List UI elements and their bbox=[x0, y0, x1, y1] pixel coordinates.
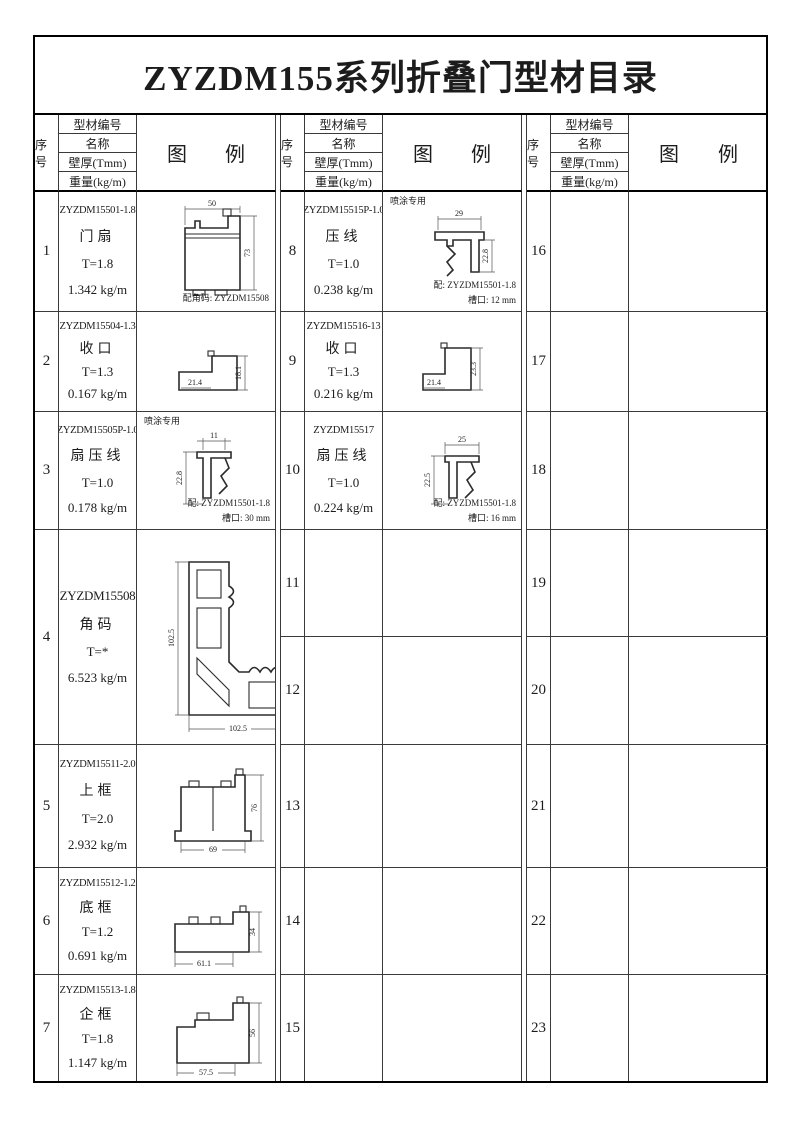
row-22-seq: 22 bbox=[527, 868, 551, 975]
col-header-seq-2: 序号 bbox=[281, 115, 305, 192]
dim-label: 23.3 bbox=[469, 362, 478, 376]
row-16-legend-empty bbox=[629, 192, 768, 312]
col-header-weight-3: 重量(kg/m) bbox=[551, 172, 629, 192]
catalog-table: ZYZDM155系列折叠门型材目录 序号 型材编号 名称 壁厚(Tmm) 重量(… bbox=[33, 35, 768, 1083]
row-14-info-empty bbox=[305, 868, 383, 975]
row-6-legend: 61.1 34 bbox=[137, 868, 276, 975]
profile-figure-7: 57.5 56 bbox=[137, 975, 276, 1081]
catalog-grid: 序号 型材编号 名称 壁厚(Tmm) 重量(kg/m) 图 例 序号 型材编号 … bbox=[35, 115, 766, 1081]
catalog-sheet: ZYZDM155系列折叠门型材目录 序号 型材编号 名称 壁厚(Tmm) 重量(… bbox=[0, 0, 800, 1131]
legend-char-tu: 图 bbox=[167, 138, 187, 167]
figure-note-slot: 槽口: 30 mm bbox=[188, 511, 271, 525]
row-8-weight: 0.238 kg/m bbox=[314, 282, 373, 298]
row-5-name: 上框 bbox=[80, 780, 116, 800]
dim-label: 50 bbox=[208, 199, 216, 208]
col-header-code-1: 型材编号 bbox=[59, 115, 137, 134]
row-18-legend-empty bbox=[629, 412, 768, 530]
row-15-seq: 15 bbox=[281, 975, 305, 1081]
dim-label: 21.4 bbox=[427, 378, 441, 387]
legend-char-li: 例 bbox=[225, 138, 245, 167]
figure-notes: 配: ZYZDM15501-1.8 槽口: 16 mm bbox=[434, 496, 517, 525]
row-15-info-empty bbox=[305, 975, 383, 1081]
row-14-legend-empty bbox=[383, 868, 522, 975]
col-header-name-3: 名称 bbox=[551, 134, 629, 153]
row-13-info-empty bbox=[305, 745, 383, 868]
col-header-thick-3: 壁厚(Tmm) bbox=[551, 153, 629, 172]
dim-label: 22.8 bbox=[481, 249, 490, 263]
row-3-thickness: T=1.0 bbox=[82, 475, 114, 491]
col-header-thick-1: 壁厚(Tmm) bbox=[59, 153, 137, 172]
legend-char-li: 例 bbox=[471, 138, 491, 167]
row-4-seq: 4 bbox=[35, 530, 59, 745]
row-1-info: ZYZDM15501-1.8 门扇 T=1.8 1.342 kg/m bbox=[59, 192, 137, 312]
dim-label: 73 bbox=[243, 249, 252, 257]
row-16-info-empty bbox=[551, 192, 629, 312]
row-4-code: ZYZDM15508 bbox=[60, 588, 136, 604]
row-8-seq: 8 bbox=[281, 192, 305, 312]
row-23-seq: 23 bbox=[527, 975, 551, 1081]
row-20-info-empty bbox=[551, 637, 629, 745]
row-17-legend-empty bbox=[629, 312, 768, 412]
figure-note: 配角码: ZYZDM15508 bbox=[183, 291, 269, 304]
row-4-name: 角码 bbox=[80, 614, 116, 634]
row-9-weight: 0.216 kg/m bbox=[314, 386, 373, 402]
row-6-info: ZYZDM15512-1.2 底框 T=1.2 0.691 kg/m bbox=[59, 868, 137, 975]
row-19-info-empty bbox=[551, 530, 629, 637]
col-header-name-2: 名称 bbox=[305, 134, 383, 153]
row-3-legend: 11 22.8 喷涂专用 配: ZYZDM15501-1.8 槽口: 30 mm bbox=[137, 412, 276, 530]
row-16-seq: 16 bbox=[527, 192, 551, 312]
dim-label: 29 bbox=[455, 209, 463, 218]
row-10-thickness: T=1.0 bbox=[328, 475, 360, 491]
profile-outline bbox=[185, 216, 240, 290]
row-8-name: 压线 bbox=[326, 226, 362, 246]
figure-note-slot: 槽口: 12 mm bbox=[434, 293, 517, 307]
profile-figure-4: 102.5 102.5 41 bbox=[137, 530, 276, 745]
row-8-thickness: T=1.0 bbox=[328, 256, 360, 272]
col-header-legend-1: 图 例 bbox=[137, 115, 276, 192]
row-10-info: ZYZDM15517 扇压线 T=1.0 0.224 kg/m bbox=[305, 412, 383, 530]
dim-label: 102.5 bbox=[229, 724, 247, 733]
col-header-seq-1: 序号 bbox=[35, 115, 59, 192]
row-17-seq: 17 bbox=[527, 312, 551, 412]
col-header-name-1: 名称 bbox=[59, 134, 137, 153]
profile-figure-5: 69 76 bbox=[137, 745, 276, 868]
row-3-seq: 3 bbox=[35, 412, 59, 530]
dim-label: 11 bbox=[210, 431, 218, 440]
row-5-seq: 5 bbox=[35, 745, 59, 868]
dim-label: 21.4 bbox=[188, 378, 202, 387]
row-4-thickness: T=* bbox=[87, 644, 109, 660]
row-7-seq: 7 bbox=[35, 975, 59, 1081]
row-7-name: 企框 bbox=[80, 1004, 116, 1024]
row-10-code: ZYZDM15517 bbox=[313, 425, 374, 436]
row-23-info-empty bbox=[551, 975, 629, 1081]
row-8-code: ZYZDM15515P-1.0 bbox=[305, 205, 383, 216]
row-14-seq: 14 bbox=[281, 868, 305, 975]
row-17-info-empty bbox=[551, 312, 629, 412]
row-3-name: 扇压线 bbox=[71, 445, 125, 465]
row-1-thickness: T=1.8 bbox=[82, 256, 114, 272]
row-2-code: ZYZDM15504-1.3 bbox=[60, 321, 136, 332]
row-7-info: ZYZDM15513-1.8 企框 T=1.8 1.147 kg/m bbox=[59, 975, 137, 1081]
row-8-info: ZYZDM15515P-1.0 压线 T=1.0 0.238 kg/m bbox=[305, 192, 383, 312]
profile-outline bbox=[435, 232, 484, 272]
col-header-weight-2: 重量(kg/m) bbox=[305, 172, 383, 192]
row-2-name: 收口 bbox=[80, 338, 116, 358]
row-19-legend-empty bbox=[629, 530, 768, 637]
legend-char-tu: 图 bbox=[659, 138, 679, 167]
row-7-thickness: T=1.8 bbox=[82, 1031, 114, 1047]
row-13-seq: 13 bbox=[281, 745, 305, 868]
row-21-info-empty bbox=[551, 745, 629, 868]
row-12-seq: 12 bbox=[281, 637, 305, 745]
figure-special-note: 喷涂专用 bbox=[390, 194, 426, 207]
col-header-legend-2: 图 例 bbox=[383, 115, 522, 192]
row-2-info: ZYZDM15504-1.3 收口 T=1.3 0.167 kg/m bbox=[59, 312, 137, 412]
profile-outline bbox=[175, 912, 249, 952]
row-12-legend-empty bbox=[383, 637, 522, 745]
figure-note-match: 配: ZYZDM15501-1.8 bbox=[434, 496, 517, 510]
row-19-seq: 19 bbox=[527, 530, 551, 637]
profile-figure-6: 61.1 34 bbox=[137, 868, 276, 975]
dim-label: 18.1 bbox=[234, 366, 243, 380]
dim-label: 25 bbox=[458, 435, 466, 444]
dim-label: 22.5 bbox=[423, 473, 432, 487]
row-9-info: ZYZDM15516-13 收口 T=1.3 0.216 kg/m bbox=[305, 312, 383, 412]
row-6-thickness: T=1.2 bbox=[82, 924, 114, 940]
row-1-code: ZYZDM15501-1.8 bbox=[60, 205, 136, 216]
row-18-info-empty bbox=[551, 412, 629, 530]
row-6-name: 底框 bbox=[80, 897, 116, 917]
row-11-seq: 11 bbox=[281, 530, 305, 637]
row-18-seq: 18 bbox=[527, 412, 551, 530]
col-header-code-3: 型材编号 bbox=[551, 115, 629, 134]
row-9-seq: 9 bbox=[281, 312, 305, 412]
dim-label: 102.5 bbox=[167, 629, 176, 647]
profile-outline bbox=[445, 456, 479, 498]
row-6-seq: 6 bbox=[35, 868, 59, 975]
profile-outline bbox=[177, 1003, 249, 1063]
row-10-weight: 0.224 kg/m bbox=[314, 500, 373, 516]
row-21-legend-empty bbox=[629, 745, 768, 868]
dim-label: 76 bbox=[250, 804, 259, 812]
col-header-seq-3: 序号 bbox=[527, 115, 551, 192]
row-11-info-empty bbox=[305, 530, 383, 637]
dim-label: 57.5 bbox=[199, 1068, 213, 1077]
row-9-code: ZYZDM15516-13 bbox=[307, 321, 381, 332]
row-13-legend-empty bbox=[383, 745, 522, 868]
figure-notes: 配: ZYZDM15501-1.8 槽口: 30 mm bbox=[188, 496, 271, 525]
row-23-legend-empty bbox=[629, 975, 768, 1081]
dim-label: 69 bbox=[209, 845, 217, 854]
row-5-thickness: T=2.0 bbox=[82, 811, 114, 827]
row-4-legend: 102.5 102.5 41 bbox=[137, 530, 276, 745]
row-2-legend: 21.4 18.1 bbox=[137, 312, 276, 412]
row-2-seq: 2 bbox=[35, 312, 59, 412]
row-12-info-empty bbox=[305, 637, 383, 745]
row-7-code: ZYZDM15513-1.8 bbox=[60, 985, 136, 996]
row-1-name: 门扇 bbox=[80, 226, 116, 246]
row-20-seq: 20 bbox=[527, 637, 551, 745]
row-3-info: ZYZDM15505P-1.0 扇压线 T=1.0 0.178 kg/m bbox=[59, 412, 137, 530]
profile-figure-2: 21.4 18.1 bbox=[137, 312, 276, 412]
row-5-legend: 69 76 bbox=[137, 745, 276, 868]
row-15-legend-empty bbox=[383, 975, 522, 1081]
legend-char-tu: 图 bbox=[413, 138, 433, 167]
figure-note-match: 配: ZYZDM15501-1.8 bbox=[188, 496, 271, 510]
row-9-name: 收口 bbox=[326, 338, 362, 358]
row-6-code: ZYZDM15512-1.2 bbox=[60, 878, 136, 889]
col-header-thick-2: 壁厚(Tmm) bbox=[305, 153, 383, 172]
row-1-legend: 50 73 配角码: ZYZDM15508 bbox=[137, 192, 276, 312]
row-1-seq: 1 bbox=[35, 192, 59, 312]
row-6-weight: 0.691 kg/m bbox=[68, 948, 127, 964]
row-7-legend: 57.5 56 bbox=[137, 975, 276, 1081]
row-22-legend-empty bbox=[629, 868, 768, 975]
row-1-weight: 1.342 kg/m bbox=[68, 282, 127, 298]
row-2-weight: 0.167 kg/m bbox=[68, 386, 127, 402]
dim-label: 22.8 bbox=[175, 471, 184, 485]
page-title: ZYZDM155系列折叠门型材目录 bbox=[143, 50, 658, 101]
dim-label: 56 bbox=[248, 1029, 257, 1037]
row-5-info: ZYZDM15511-2.0 上框 T=2.0 2.932 kg/m bbox=[59, 745, 137, 868]
row-5-weight: 2.932 kg/m bbox=[68, 837, 127, 853]
row-21-seq: 21 bbox=[527, 745, 551, 868]
figure-notes: 配: ZYZDM15501-1.8 槽口: 12 mm bbox=[434, 278, 517, 307]
figure-note-match: 配: ZYZDM15501-1.8 bbox=[434, 278, 517, 292]
row-8-legend: 29 22.8 喷涂专用 配: ZYZDM15501-1.8 槽口: 12 mm bbox=[383, 192, 522, 312]
row-5-code: ZYZDM15511-2.0 bbox=[60, 759, 136, 770]
row-20-legend-empty bbox=[629, 637, 768, 745]
profile-outline bbox=[189, 562, 276, 715]
dim-label: 61.1 bbox=[197, 959, 211, 968]
col-header-weight-1: 重量(kg/m) bbox=[59, 172, 137, 192]
row-3-code: ZYZDM15505P-1.0 bbox=[59, 425, 137, 436]
legend-char-li: 例 bbox=[718, 138, 738, 167]
figure-special-note: 喷涂专用 bbox=[144, 414, 180, 427]
row-10-seq: 10 bbox=[281, 412, 305, 530]
row-7-weight: 1.147 kg/m bbox=[68, 1055, 127, 1071]
col-header-code-2: 型材编号 bbox=[305, 115, 383, 134]
row-9-thickness: T=1.3 bbox=[328, 364, 360, 380]
row-4-info: ZYZDM15508 角码 T=* 6.523 kg/m bbox=[59, 530, 137, 745]
figure-note-slot: 槽口: 16 mm bbox=[434, 511, 517, 525]
row-9-legend: 21.4 23.3 bbox=[383, 312, 522, 412]
profile-figure-9: 21.4 23.3 bbox=[383, 312, 522, 412]
col-header-legend-3: 图 例 bbox=[629, 115, 768, 192]
dim-label: 34 bbox=[248, 928, 257, 936]
row-2-thickness: T=1.3 bbox=[82, 364, 114, 380]
row-10-name: 扇压线 bbox=[317, 445, 371, 465]
row-3-weight: 0.178 kg/m bbox=[68, 500, 127, 516]
row-4-weight: 6.523 kg/m bbox=[68, 670, 127, 686]
row-22-info-empty bbox=[551, 868, 629, 975]
title-row: ZYZDM155系列折叠门型材目录 bbox=[35, 37, 766, 115]
row-10-legend: 25 22.5 配: ZYZDM15501-1.8 槽口: 16 mm bbox=[383, 412, 522, 530]
row-11-legend-empty bbox=[383, 530, 522, 637]
